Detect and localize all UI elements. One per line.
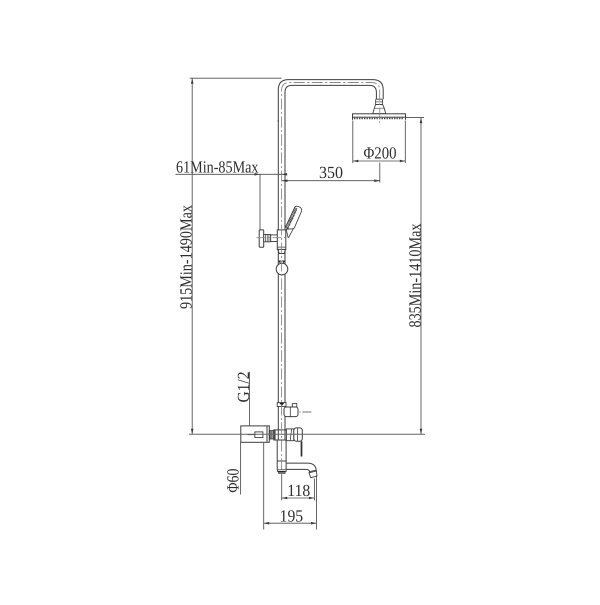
svg-text:Φ200: Φ200 <box>364 143 397 162</box>
svg-text:350: 350 <box>319 163 343 182</box>
svg-text:835Min-1410Max: 835Min-1410Max <box>406 223 425 327</box>
svg-text:61Min-85Max: 61Min-85Max <box>176 158 259 177</box>
svg-text:Φ60: Φ60 <box>224 469 243 493</box>
svg-text:118: 118 <box>287 481 310 500</box>
svg-text:915Min-1490Max: 915Min-1490Max <box>177 205 196 309</box>
svg-text:195: 195 <box>280 507 304 526</box>
svg-text:G1/2: G1/2 <box>234 372 253 403</box>
